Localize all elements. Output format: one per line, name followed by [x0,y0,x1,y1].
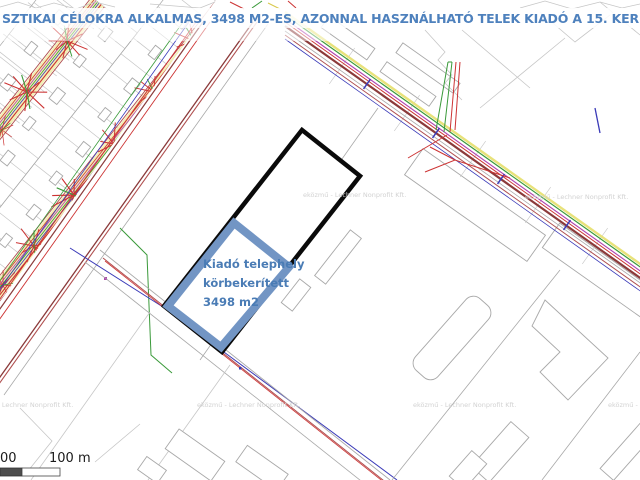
cadastral-map: eközmű - Lechner Nonprofit Kft. eközmű -… [0,0,640,480]
map-screenshot: eközmű - Lechner Nonprofit Kft. eközmű -… [0,0,640,480]
watermark-text: eközmű - Lechner Nonprofit Kft. [525,192,628,201]
scalebar-left-label: 00 [0,451,17,466]
scalebar-dark-segment [0,468,22,476]
parcel-label-line1: Kiadó telephely [203,257,305,271]
watermark-text: eközmű - Lechner Nonprofit Kft. [303,190,406,199]
watermark-text: eközmű - Lechner Nonprofit Kft. [413,400,516,409]
watermark-text: eközmű - Lechner Nonprofit Kft. [608,400,640,409]
watermark-text: eközmű - Lechner Nonprofit Kft. [0,400,73,409]
scalebar-right-label: 100 m [49,451,91,466]
scalebar-light-segment [22,468,60,476]
map-background [0,0,640,480]
parcel-label-line2: körbekerített [203,276,289,290]
parcel-label-line3: 3498 m2 [203,295,259,309]
watermark-text: eközmű - Lechner Nonprofit Kft. [197,400,300,409]
page-title: SZTIKAI CÉLOKRA ALKALMAS, 3498 M2-ES, AZ… [2,11,640,26]
